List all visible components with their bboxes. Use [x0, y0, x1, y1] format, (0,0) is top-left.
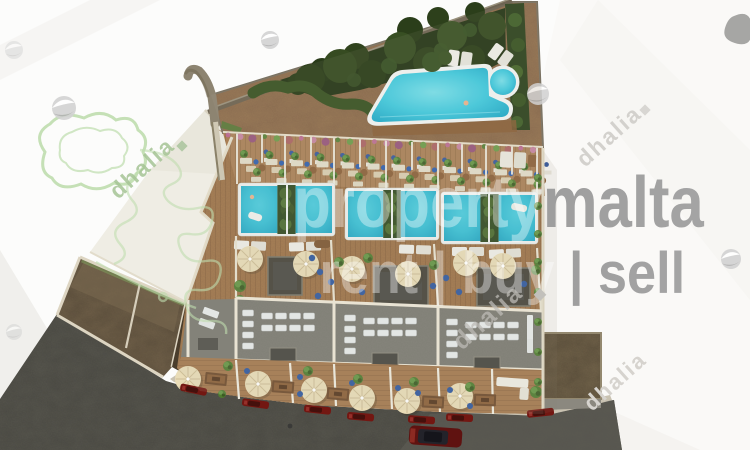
svg-text:propertymalta: propertymalta: [293, 163, 704, 244]
